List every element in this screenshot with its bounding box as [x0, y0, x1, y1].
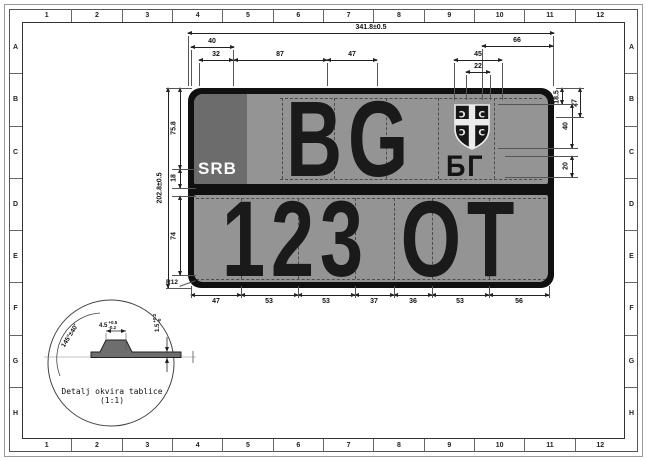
ruler-label: G [9, 335, 22, 387]
dimension-line [454, 60, 502, 61]
dimension-line [489, 295, 549, 296]
guide-line [438, 98, 439, 179]
extension-line [394, 286, 395, 298]
dimension-label: 22 [474, 63, 482, 70]
ruler-label: B [9, 73, 22, 125]
dimension-label: 18 [171, 174, 178, 182]
extension-line [502, 63, 503, 100]
extension-line [454, 63, 455, 100]
dimension-label: 20 [563, 162, 570, 170]
ruler-label: A [625, 22, 638, 73]
dimension-label: 45 [474, 51, 482, 58]
ruler-label: H [625, 387, 638, 439]
dimension-label: 53 [265, 298, 273, 305]
ruler-label: 9 [424, 9, 474, 22]
dimension-line [234, 60, 327, 61]
dimension-label: 47 [348, 51, 356, 58]
ruler-top: 123456789101112 [22, 9, 625, 22]
dimension-line [355, 295, 394, 296]
svg-text:Ɔ: Ɔ [459, 111, 466, 121]
ruler-label: F [9, 282, 22, 334]
guide-line [494, 98, 495, 179]
ruler-label: 12 [575, 439, 625, 452]
dimension-label: 341.8±0.5 [355, 24, 386, 31]
extension-line [241, 286, 242, 298]
ruler-label: 5 [222, 439, 272, 452]
dimension-label: 36 [409, 298, 417, 305]
frame-section-detail [40, 292, 200, 434]
ruler-label: G [625, 335, 638, 387]
extension-line [233, 50, 234, 86]
ruler-label: 2 [71, 9, 121, 22]
extension-line [490, 75, 491, 100]
ruler-left: ABCDEFGH [9, 22, 22, 439]
dimension-line [327, 60, 377, 61]
country-code-label: SRB [198, 159, 237, 179]
extension-line [498, 148, 578, 149]
extension-line [172, 275, 196, 276]
extension-line [556, 117, 584, 118]
ruler-label: 9 [424, 439, 474, 452]
extension-line [166, 288, 192, 289]
extension-line [556, 88, 584, 89]
dimension-label: 75.8 [171, 121, 178, 135]
dimension-line [180, 169, 181, 188]
detail-caption: Detalj okvira tablice (1:1) [52, 387, 172, 405]
ruler-label: 7 [323, 9, 373, 22]
extension-line [172, 169, 196, 170]
extension-line [172, 188, 196, 189]
dimension-line [580, 88, 581, 117]
extension-line [432, 286, 433, 298]
dimension-line [572, 156, 573, 177]
extension-line [191, 50, 192, 86]
svg-text:Ɔ: Ɔ [459, 129, 466, 139]
dimension-label: 87 [276, 51, 284, 58]
dimension-line [241, 295, 298, 296]
dimension-label: 74 [171, 232, 178, 240]
radius-label: R12 [166, 279, 178, 286]
ruler-label: 7 [323, 439, 373, 452]
ruler-label: 6 [273, 439, 323, 452]
dimension-label: 18.5 [554, 90, 561, 104]
extension-line [549, 286, 550, 298]
ruler-label: 1 [22, 9, 71, 22]
dimension-line [168, 88, 169, 288]
dimension-label: 66 [513, 37, 521, 44]
registration-area-code: BG [286, 94, 414, 184]
ruler-label: 3 [122, 9, 172, 22]
dimension-line [562, 88, 563, 104]
extension-line [505, 177, 578, 178]
ruler-label: 10 [474, 439, 524, 452]
dimension-line [432, 295, 489, 296]
ruler-label: 2 [71, 439, 121, 452]
ruler-label: C [625, 126, 638, 178]
dimension-line [482, 46, 553, 47]
serbian-cross-shield-icon: Ɔ C Ɔ C [452, 103, 492, 151]
dimension-line [199, 60, 233, 61]
ruler-label: D [625, 178, 638, 230]
license-plate-drawing: SRB BG Ɔ C Ɔ C БГ [188, 88, 554, 288]
ruler-label: 5 [222, 9, 272, 22]
ruler-label: 8 [373, 439, 423, 452]
extension-line [505, 156, 578, 157]
ruler-label: 12 [575, 9, 625, 22]
dimension-line [298, 295, 355, 296]
ruler-label: 4 [172, 9, 222, 22]
dimension-line [466, 72, 490, 73]
detail-width-dimension: 4.5 +0.5-0.2 [99, 321, 117, 330]
svg-text:C: C [478, 129, 485, 139]
dimension-label: 56 [515, 298, 523, 305]
registration-number: 123 OT [244, 195, 499, 282]
ruler-right: ABCDEFGH [625, 22, 638, 439]
extension-line [199, 63, 200, 86]
ruler-label: 10 [474, 9, 524, 22]
country-band: SRB [194, 94, 247, 184]
extension-line [498, 104, 578, 105]
extension-line [377, 63, 378, 86]
plate-top-row: SRB BG Ɔ C Ɔ C БГ [194, 94, 548, 184]
detail-thickness-dimension: 1.5 +0.2-0 [153, 314, 162, 332]
dimension-label: 53 [456, 298, 464, 305]
ruler-bottom: 123456789101112 [22, 439, 625, 452]
ruler-label: C [9, 126, 22, 178]
dimension-label: 202.8±0.5 [157, 172, 164, 203]
plate-bottom-row: 123 OT [194, 195, 548, 282]
extension-line [298, 286, 299, 298]
ruler-label: E [625, 230, 638, 282]
dimension-label: 53 [322, 298, 330, 305]
extension-line [355, 286, 356, 298]
extension-line [188, 36, 189, 86]
dimension-label: 37 [370, 298, 378, 305]
ruler-label: 11 [524, 439, 574, 452]
svg-text:C: C [478, 111, 485, 121]
dimension-label: 40 [208, 38, 216, 45]
extension-line [166, 88, 192, 89]
ruler-label: H [9, 387, 22, 439]
district-cyrillic-label: БГ [446, 150, 484, 184]
dimension-line [180, 88, 181, 169]
dimension-label: 40 [563, 122, 570, 130]
guide-line [282, 98, 283, 179]
dimension-line [188, 33, 554, 34]
extension-line [482, 49, 483, 100]
dimension-line [191, 47, 234, 48]
dimension-line [572, 104, 573, 148]
extension-line [172, 196, 196, 197]
dimension-label: 32 [212, 51, 220, 58]
ruler-label: 3 [122, 439, 172, 452]
ruler-label: E [9, 230, 22, 282]
extension-line [489, 286, 490, 298]
extension-line [466, 75, 467, 100]
ruler-label: F [625, 282, 638, 334]
ruler-label: 11 [524, 9, 574, 22]
ruler-label: B [625, 73, 638, 125]
ruler-label: A [9, 22, 22, 73]
dimension-line [394, 295, 432, 296]
ruler-label: 1 [22, 439, 71, 452]
ruler-label: D [9, 178, 22, 230]
dimension-label: 47 [212, 298, 220, 305]
extension-line [327, 63, 328, 86]
ruler-label: 4 [172, 439, 222, 452]
ruler-label: 8 [373, 9, 423, 22]
ruler-label: 6 [273, 9, 323, 22]
dimension-line [180, 196, 181, 275]
